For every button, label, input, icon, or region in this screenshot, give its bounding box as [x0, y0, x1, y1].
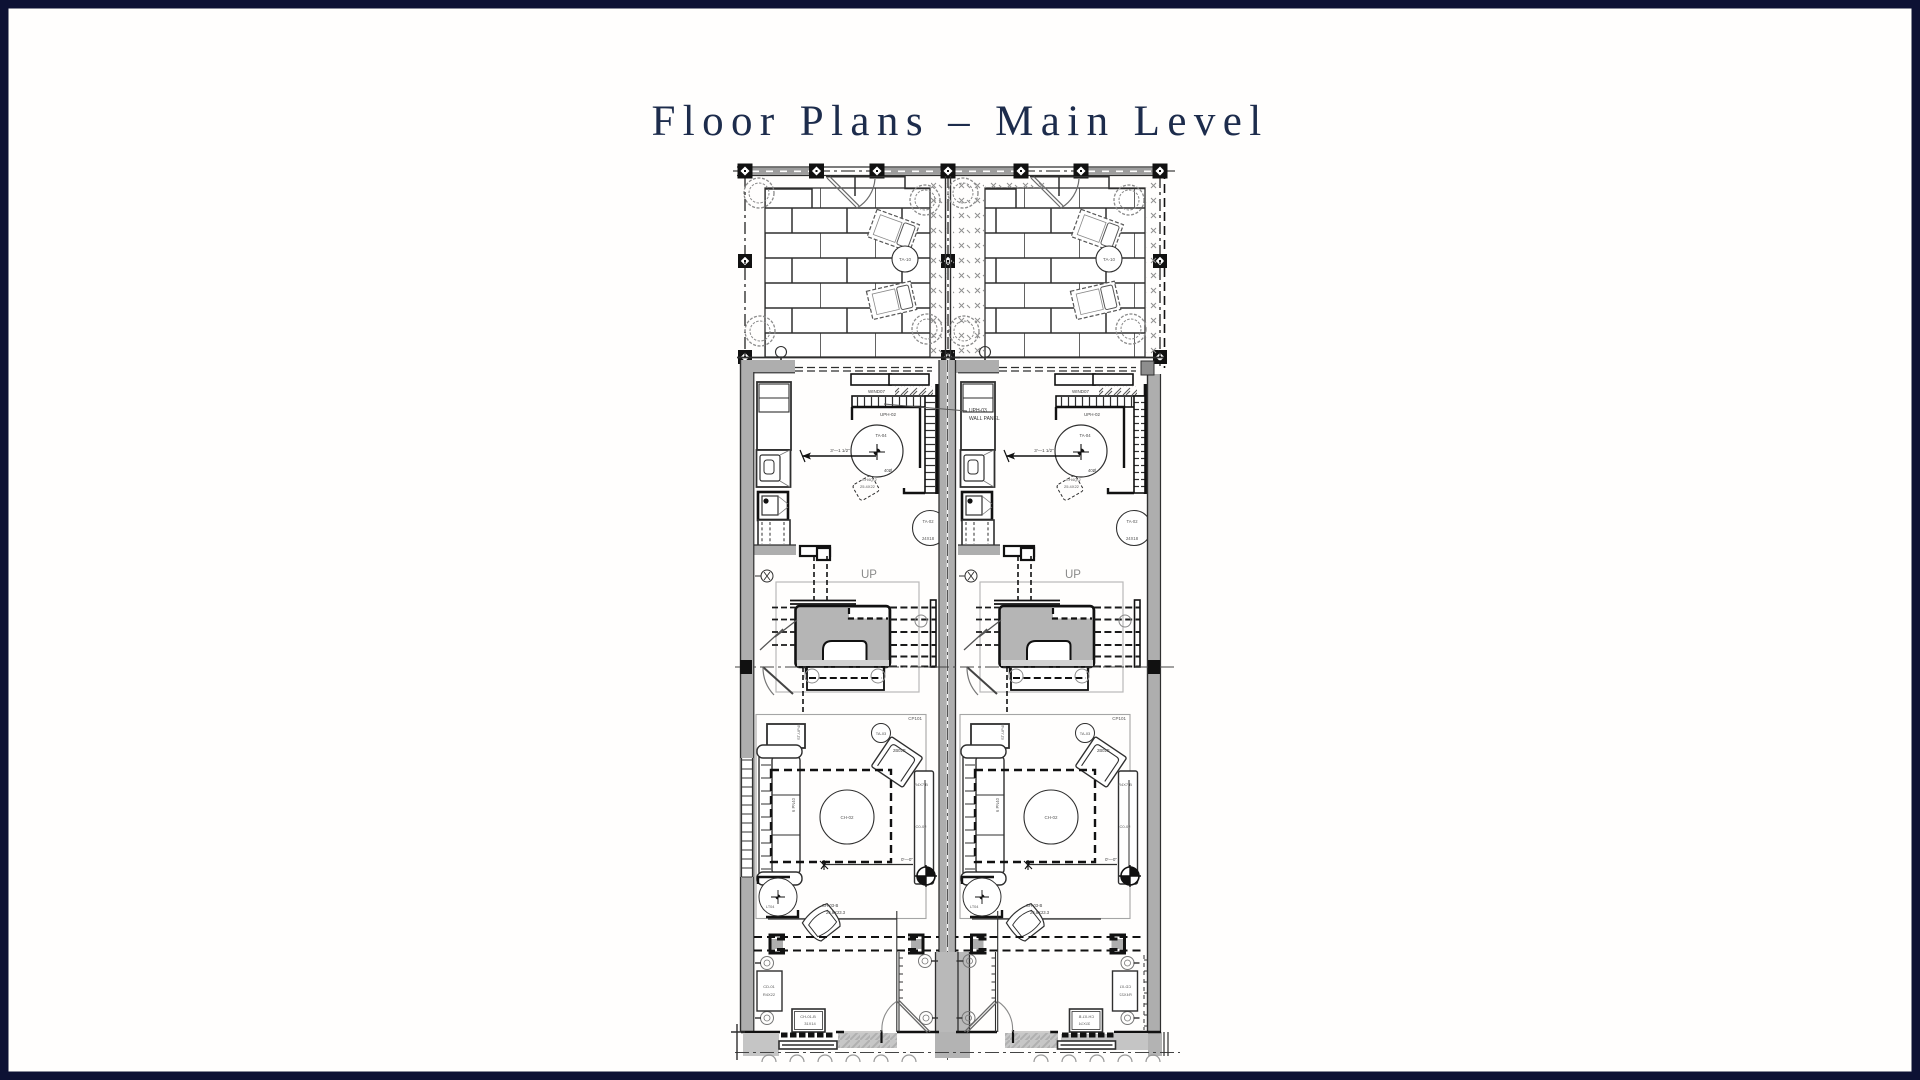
svg-text:UP: UP [1065, 569, 1081, 581]
svg-text:TA-03: TA-03 [876, 731, 887, 736]
svg-text:TA-04: TA-04 [875, 433, 887, 438]
svg-text:25.4X22: 25.4X22 [860, 484, 876, 489]
svg-text:26.8X23.3: 26.8X23.3 [826, 910, 846, 915]
svg-text:UPH-02: UPH-02 [1084, 412, 1101, 417]
svg-text:0'—0": 0'—0" [901, 857, 913, 862]
svg-text:TA-02: TA-02 [1126, 519, 1138, 524]
svg-text:2B02P: 2B02P [1097, 748, 1110, 753]
svg-text:C0-02: C0-02 [916, 824, 928, 829]
svg-text:C0-02: C0-02 [1120, 824, 1132, 829]
svg-text:CP101: CP101 [1112, 716, 1126, 721]
svg-text:WALL PANEL: WALL PANEL [969, 416, 1000, 422]
svg-text:0'—0": 0'—0" [1105, 857, 1117, 862]
svg-text:24X18: 24X18 [1126, 536, 1139, 541]
svg-text:CH-01-B: CH-01-B [1078, 1014, 1094, 1019]
svg-text:31X14: 31X14 [804, 1021, 816, 1026]
svg-text:31X14: 31X14 [1078, 1021, 1090, 1026]
svg-text:CH-01-B: CH-01-B [800, 1014, 816, 1019]
svg-text:LT04: LT04 [970, 905, 978, 909]
svg-text:CD-01: CD-01 [1119, 984, 1131, 989]
svg-text:TA-10: TA-10 [1103, 257, 1115, 262]
svg-text:TA-04: TA-04 [1079, 433, 1091, 438]
svg-text:WIND07: WIND07 [1072, 389, 1089, 394]
svg-text:3'—1 1/2": 3'—1 1/2" [830, 448, 850, 453]
svg-text:25.4X22: 25.4X22 [1064, 484, 1080, 489]
svg-text:6 PN40: 6 PN40 [995, 797, 1000, 812]
svg-text:3'—1 1/2": 3'—1 1/2" [1034, 448, 1054, 453]
svg-text:UPH-02: UPH-02 [880, 412, 897, 417]
svg-text:6 PN40: 6 PN40 [791, 797, 796, 812]
svg-text:LT04: LT04 [766, 905, 774, 909]
svg-text:TA-10: TA-10 [899, 257, 911, 262]
svg-text:40Ø: 40Ø [884, 468, 893, 473]
svg-text:R4X7.B: R4X7.B [914, 782, 928, 787]
svg-text:WIND07: WIND07 [868, 389, 885, 394]
svg-text:UPH-03: UPH-03 [969, 408, 987, 414]
svg-text:TA-03: TA-03 [1080, 731, 1091, 736]
svg-text:TA-02: TA-02 [922, 519, 934, 524]
svg-text:26.8X23.3: 26.8X23.3 [1030, 910, 1050, 915]
svg-text:CH4Q-2: CH4Q-2 [1066, 477, 1081, 482]
svg-text:R4X22: R4X22 [1119, 992, 1132, 997]
svg-text:R4X7.B: R4X7.B [1118, 782, 1132, 787]
svg-text:CH-03-B: CH-03-B [822, 903, 838, 908]
svg-text:CH-02: CH-02 [1044, 815, 1058, 820]
svg-text:CH-02: CH-02 [840, 815, 854, 820]
svg-text:Floor Plans – Main Level: Floor Plans – Main Level [651, 98, 1268, 145]
svg-text:24X18: 24X18 [922, 536, 935, 541]
svg-text:2B02P: 2B02P [893, 748, 906, 753]
svg-text:ST-UP40: ST-UP40 [1000, 723, 1005, 740]
svg-text:CH-03-B: CH-03-B [1026, 903, 1042, 908]
svg-text:CD-01: CD-01 [763, 984, 775, 989]
svg-text:ST-UP40: ST-UP40 [796, 723, 801, 740]
svg-text:CH4Q-2: CH4Q-2 [862, 477, 877, 482]
svg-text:40Ø: 40Ø [1088, 468, 1097, 473]
svg-text:UP: UP [861, 569, 877, 581]
svg-text:CP101: CP101 [908, 716, 922, 721]
svg-text:R4X22: R4X22 [763, 992, 776, 997]
